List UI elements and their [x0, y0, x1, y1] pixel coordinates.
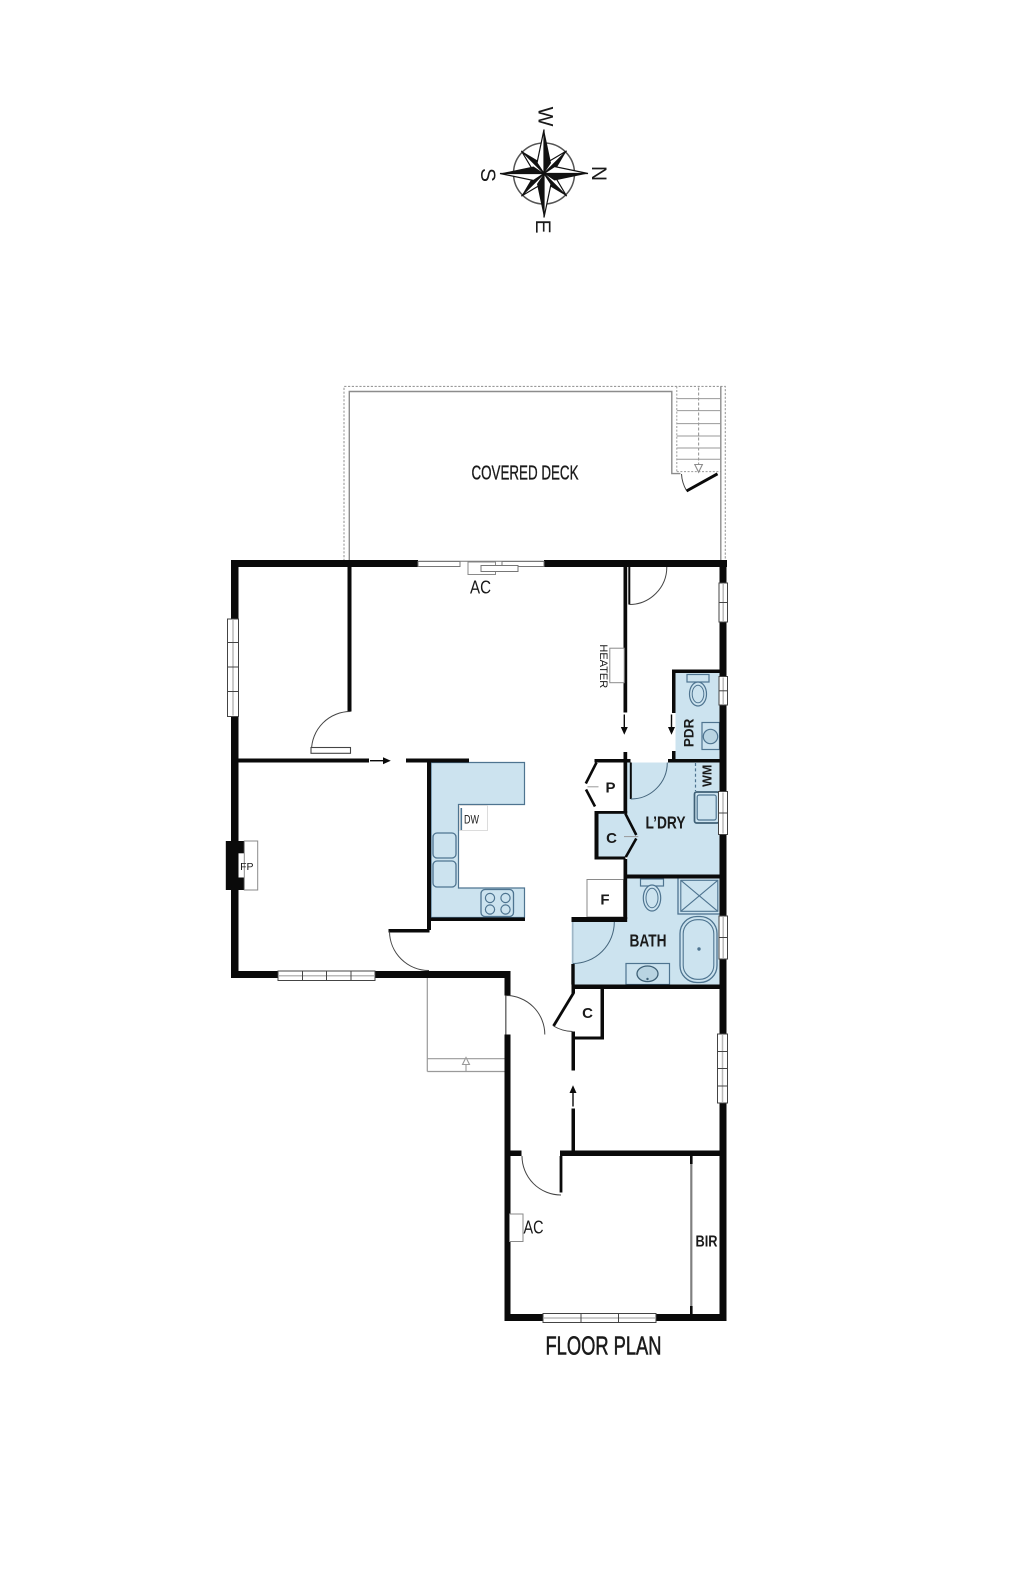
svg-text:L’DRY: L’DRY: [646, 813, 686, 833]
svg-text:FP: FP: [240, 861, 253, 873]
svg-text:FLOOR PLAN: FLOOR PLAN: [546, 1333, 662, 1361]
svg-text:BATH: BATH: [630, 931, 667, 951]
svg-text:PDR: PDR: [681, 718, 696, 747]
svg-text:W: W: [534, 107, 557, 127]
svg-text:P: P: [605, 780, 615, 797]
svg-text:C: C: [582, 1005, 593, 1022]
svg-text:N: N: [587, 166, 610, 181]
svg-text:C: C: [606, 830, 617, 847]
svg-text:E: E: [531, 219, 554, 233]
svg-text:DW: DW: [464, 815, 479, 827]
svg-text:WM: WM: [701, 765, 715, 787]
svg-text:AC: AC: [470, 577, 491, 598]
svg-text:HEATER: HEATER: [597, 644, 609, 688]
svg-text:BIR: BIR: [696, 1234, 718, 1251]
svg-text:AC: AC: [524, 1217, 544, 1238]
svg-text:COVERED DECK: COVERED DECK: [472, 463, 579, 485]
svg-text:F: F: [600, 892, 609, 909]
svg-text:S: S: [476, 168, 499, 182]
